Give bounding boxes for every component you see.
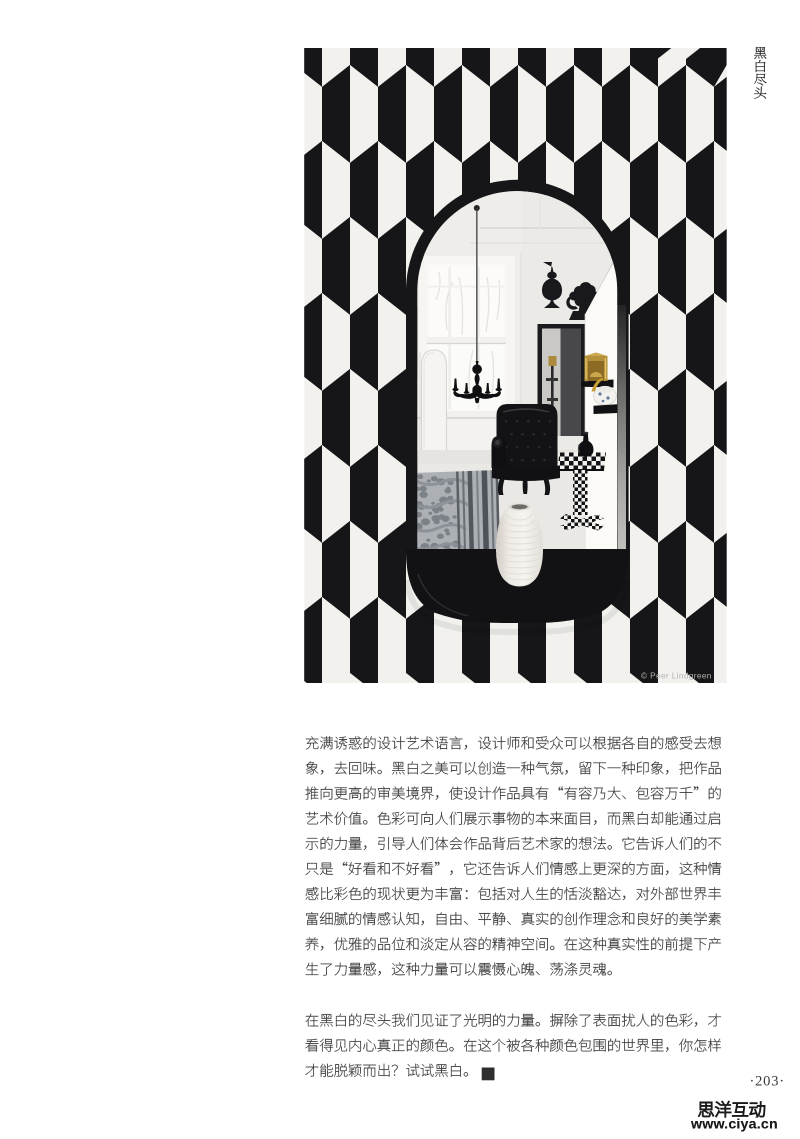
svg-text:www.ciya.cn: www.ciya.cn	[690, 1117, 778, 1133]
svg-text:© Peer Lindgreen: © Peer Lindgreen	[641, 671, 712, 681]
svg-text:·203·: ·203·	[750, 1074, 785, 1090]
